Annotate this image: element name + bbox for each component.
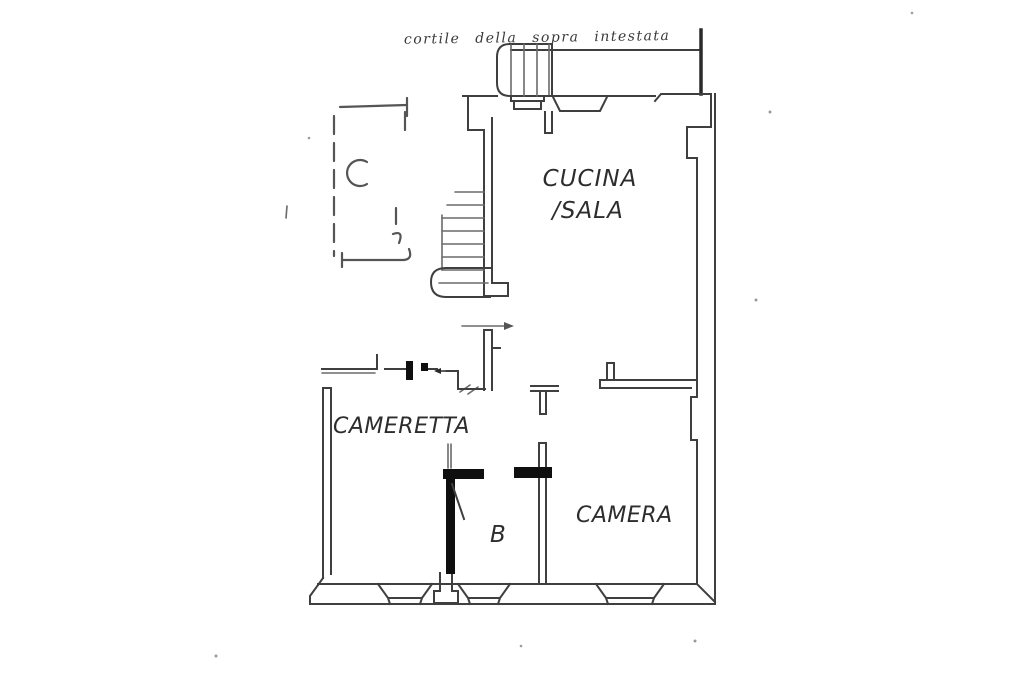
direction-arrow-icon <box>462 322 514 330</box>
floor-plan-canvas: cortile della sopra intestata <box>0 0 1024 682</box>
balcony-top-line <box>340 105 407 107</box>
label-bathroom: B <box>490 522 506 548</box>
bathroom-wall-filled <box>446 479 455 574</box>
balcony-right-marks <box>393 112 405 243</box>
balcony-c-mark <box>347 160 367 186</box>
entry-window <box>548 96 612 111</box>
label-sala: /SALA <box>550 198 624 224</box>
room-labels: CUCINA /SALA CAMERETTA B CAMERA <box>333 166 673 548</box>
bathroom-door-marker <box>443 469 484 479</box>
window-cameretta <box>378 584 432 604</box>
stairs-stringer-wall <box>484 118 492 296</box>
interior-walls <box>322 330 697 603</box>
cameretta-top-wall <box>322 355 437 369</box>
bottom-left-corner <box>310 585 318 604</box>
floor-plan-page: cortile della sopra intestata <box>0 0 1024 682</box>
entry-jamb-stub <box>545 112 552 133</box>
windows <box>378 584 664 604</box>
left-stray-tick <box>286 206 287 218</box>
t-wall-element <box>531 386 558 414</box>
bathroom-wall-pier <box>434 573 458 603</box>
entry-landing <box>511 96 544 109</box>
cameretta-door-dot <box>421 363 428 371</box>
balcony-bottom-line <box>342 249 410 267</box>
label-camera: CAMERA <box>576 503 673 528</box>
window-bathroom <box>458 584 510 604</box>
stairs-treads <box>442 192 484 270</box>
window-camera <box>596 584 664 604</box>
balcony-sketch <box>286 98 410 267</box>
staircase <box>431 97 508 297</box>
entry-steps <box>497 44 552 133</box>
entry-window-sill <box>553 97 607 111</box>
label-cucina: CUCINA <box>543 166 638 192</box>
arrow-head <box>504 322 514 330</box>
cameretta-door-blob <box>406 361 413 380</box>
door-markers <box>406 361 552 574</box>
camera-top-wall <box>600 363 697 388</box>
stairs-stringer-foot <box>484 283 508 296</box>
bathroom-wall-upper <box>448 444 451 468</box>
label-cameretta: CAMERETTA <box>333 414 470 439</box>
bottom-right-corner <box>697 584 715 602</box>
right-wall-inner <box>691 158 697 584</box>
top-right-corner-wall <box>655 94 711 158</box>
bath-camera-wall <box>539 443 546 584</box>
entry-steps-treads <box>511 44 549 96</box>
camera-door-marker <box>514 467 552 478</box>
stairs-top-stub <box>468 97 484 130</box>
scan-specks <box>215 12 914 658</box>
corridor-wall <box>484 330 500 390</box>
left-wall <box>318 388 331 585</box>
